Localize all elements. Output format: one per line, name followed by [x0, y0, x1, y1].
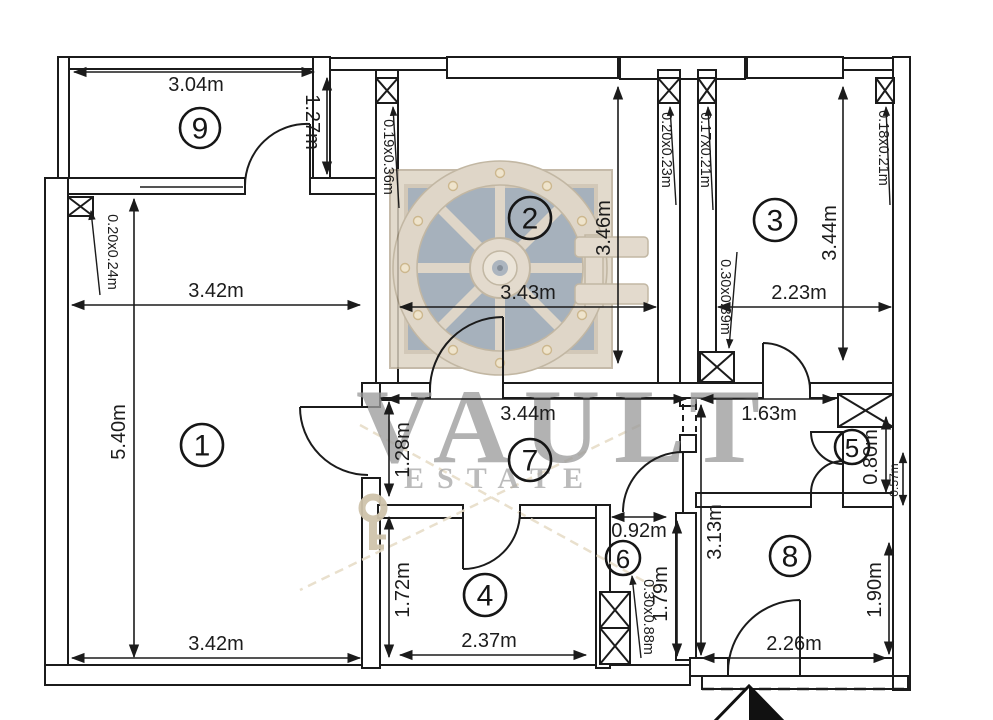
- door-room4: [463, 512, 520, 569]
- dim-room5-depth: 0.57m: [887, 463, 901, 496]
- dim-room7-height: 1.28m: [392, 422, 414, 478]
- wall-segment: [58, 57, 330, 69]
- dim-room3-height: 3.44m: [819, 205, 841, 261]
- svg-text:5: 5: [845, 433, 859, 463]
- window-box-room2-right: [658, 78, 680, 103]
- dim-room6-width: 0.92m: [611, 520, 667, 542]
- wall-segment: [310, 178, 378, 194]
- svg-text:9: 9: [192, 113, 209, 146]
- window-label-room3-bottom: 0.30x0.39m: [717, 259, 733, 335]
- svg-text:1: 1: [194, 430, 211, 463]
- dim-room2-width: 3.43m: [500, 282, 556, 304]
- wall-segment: [893, 57, 910, 690]
- window-label-room3-right: 0.18x0.21m: [875, 110, 891, 186]
- window-box-room2-left: [376, 78, 398, 103]
- vault-logo-watermark: [390, 161, 648, 375]
- svg-text:4: 4: [477, 580, 494, 613]
- dim-room3-width: 2.23m: [771, 282, 827, 304]
- dim-room8-right-height: 1.90m: [864, 562, 886, 618]
- dim-room7-width: 3.44m: [500, 403, 556, 425]
- window-box-room1-left: [68, 197, 93, 216]
- wall-segment: [690, 658, 728, 676]
- room-number-8: 8: [770, 536, 810, 576]
- svg-text:3: 3: [767, 205, 784, 238]
- shaft-box-room5: [838, 394, 893, 427]
- dim-room9-width: 3.04m: [168, 74, 224, 96]
- floor-plan: VAULT ESTATE: [0, 0, 993, 720]
- window-label-room2-left: 0.19x0.36m: [380, 119, 396, 195]
- dim-room8-left-height: 3.13m: [704, 504, 726, 560]
- wall-segment: [800, 658, 893, 676]
- wall-segment: [45, 178, 245, 194]
- window-label-room3-left: 0.17x0.21m: [697, 112, 713, 188]
- dim-room4-height: 1.72m: [392, 562, 414, 618]
- room-number-3: 3: [754, 199, 796, 241]
- wall-segment: [747, 57, 843, 78]
- dim-room6-height: 1.79m: [650, 566, 672, 622]
- dim-room5-height: 0.80m: [860, 429, 882, 485]
- room-number-9: 9: [180, 108, 220, 148]
- window-box-room3-bottom: [700, 352, 734, 382]
- dim-room1-bottom: 3.42m: [188, 633, 244, 655]
- room-number-4: 4: [464, 574, 506, 616]
- wall-segment: [676, 513, 696, 660]
- entrance-porch: [702, 676, 908, 689]
- svg-text:7: 7: [522, 445, 539, 478]
- dim-room1-top: 3.42m: [188, 280, 244, 302]
- door-balcony-room9: [245, 124, 310, 186]
- dim-room9-height: 1.27m: [301, 94, 323, 150]
- leader-window-room6: [632, 576, 641, 658]
- svg-text:8: 8: [782, 541, 799, 574]
- leader-window-room1: [91, 211, 100, 295]
- entrance-direction-arrow-icon: [714, 686, 784, 720]
- dim-room2-height: 3.46m: [593, 200, 615, 256]
- watermark-brand-line2: ESTATE: [404, 462, 596, 495]
- dim-room5-width: 1.63m: [741, 403, 797, 425]
- shaft-box-room6: [600, 592, 630, 664]
- wall-segment: [843, 493, 893, 507]
- svg-text:2: 2: [522, 203, 539, 236]
- room-number-6: 6: [606, 541, 640, 575]
- wall-segment: [447, 57, 618, 78]
- wall-segment: [58, 57, 69, 192]
- wall-segment: [520, 505, 596, 518]
- window-label-room2-right: 0.20x0.23m: [658, 112, 674, 188]
- window-label-room1: 0.20x0.24m: [104, 214, 120, 290]
- window-box-room3-right: [876, 78, 894, 103]
- svg-text:6: 6: [616, 544, 630, 574]
- dim-room1-left: 5.40m: [108, 404, 130, 460]
- room-number-1: 1: [181, 424, 223, 466]
- wall-segment: [620, 57, 745, 79]
- dim-room8-width: 2.26m: [766, 633, 822, 655]
- dim-room4-width: 2.37m: [461, 630, 517, 652]
- window-box-room3-left: [698, 78, 716, 103]
- floor-plan-page: VAULT ESTATE: [0, 0, 993, 720]
- wall-segment: [45, 178, 68, 685]
- door-room5-double: [811, 432, 843, 493]
